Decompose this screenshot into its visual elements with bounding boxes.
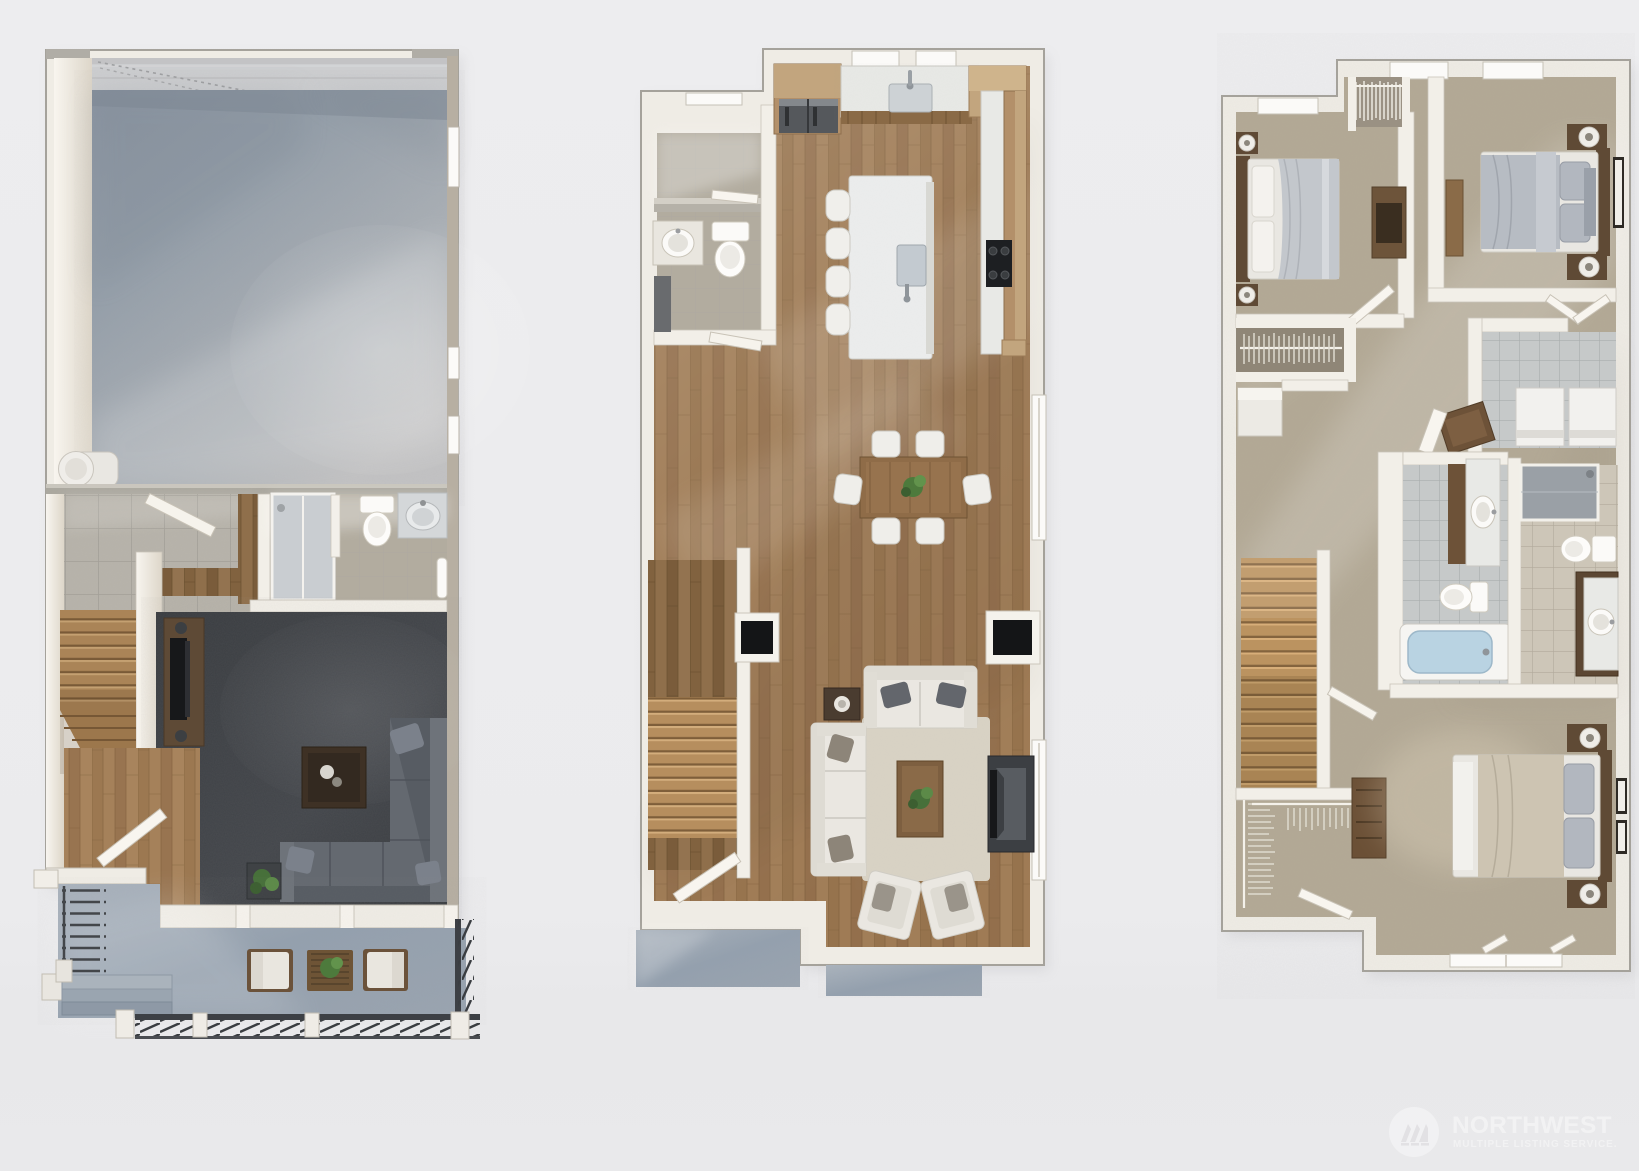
svg-text:NORTHWEST: NORTHWEST <box>1452 1112 1612 1139</box>
svg-text:MULTIPLE LISTING SERVICE.: MULTIPLE LISTING SERVICE. <box>1453 1139 1618 1150</box>
